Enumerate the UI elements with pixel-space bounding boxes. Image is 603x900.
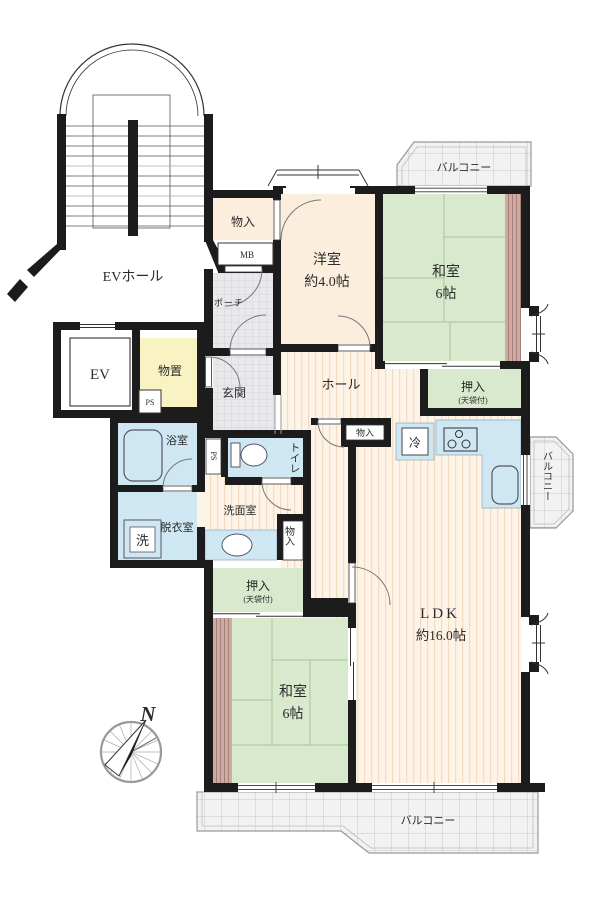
label-mb: MB	[240, 250, 254, 260]
label-western-room: 洋室	[313, 251, 341, 268]
label-ps-storage: PS	[146, 398, 155, 407]
label-toilet: トイレ	[289, 442, 300, 474]
jp-room-top-edge	[505, 194, 521, 361]
bay-window-top	[268, 165, 368, 186]
label-ev: EV	[90, 367, 110, 383]
label-ldk: LDK	[420, 606, 460, 622]
label-jp-room-bottom: 和室	[279, 683, 307, 700]
label-balcony-bottom: バルコニー	[401, 814, 456, 827]
label-washroom: 洗面室	[224, 503, 257, 517]
label-hall: ホール	[321, 377, 360, 392]
label-genkan: 玄関	[222, 385, 246, 400]
floor-plan-page: EVホール 物入 MB ポーチ 洋室 約4.0帖 和室 6帖 バルコニー EV …	[0, 0, 603, 900]
jp-room-bottom-edge	[213, 618, 232, 783]
balcony-bottom	[197, 792, 538, 853]
label-fridge: 冷	[409, 436, 421, 450]
toilet-tank	[231, 443, 240, 467]
toilet-bowl	[241, 444, 267, 466]
label-dressing: 脱衣室	[161, 520, 194, 534]
label-storage: 物置	[158, 364, 182, 378]
label-oshiire-right-sub: (天袋付)	[458, 395, 488, 405]
label-jp-room-top: 和室	[432, 263, 460, 280]
stair-arc-inner	[66, 50, 198, 116]
floor-plan-drawing: EVホール 物入 MB ポーチ 洋室 約4.0帖 和室 6帖 バルコニー EV …	[0, 0, 603, 900]
label-washer: 洗	[136, 533, 149, 548]
label-jp-room-bottom-size: 6帖	[283, 706, 304, 722]
bath-floor	[118, 423, 197, 485]
label-compass-n: N	[139, 702, 156, 726]
label-oshiire-bottom: 押入	[246, 579, 270, 593]
label-hall-closet: 物入	[356, 427, 374, 438]
label-western-room-size: 約4.0帖	[304, 274, 350, 290]
western-room-floor	[281, 194, 375, 344]
label-ldk-size: 約16.0帖	[416, 628, 467, 643]
label-closet-top: 物入	[231, 215, 255, 229]
label-balcony-top: バルコニー	[437, 161, 492, 174]
staircase	[7, 44, 228, 302]
label-ev-hall: EVホール	[103, 270, 164, 285]
label-bath: 浴室	[166, 433, 188, 447]
label-mid-closet: 物入	[283, 525, 295, 546]
label-oshiire-bottom-sub: (天袋付)	[243, 594, 273, 604]
label-jp-room-top-size: 6帖	[436, 286, 457, 302]
label-balcony-right: バルコニー	[541, 451, 553, 501]
label-oshiire-right: 押入	[461, 380, 485, 394]
wash-basin	[222, 534, 252, 556]
compass	[101, 720, 161, 782]
stair-arc-outer	[60, 44, 204, 116]
label-ps-wc: PS	[209, 452, 218, 461]
balcony-right	[530, 437, 573, 528]
label-porch: ポーチ	[214, 298, 244, 308]
